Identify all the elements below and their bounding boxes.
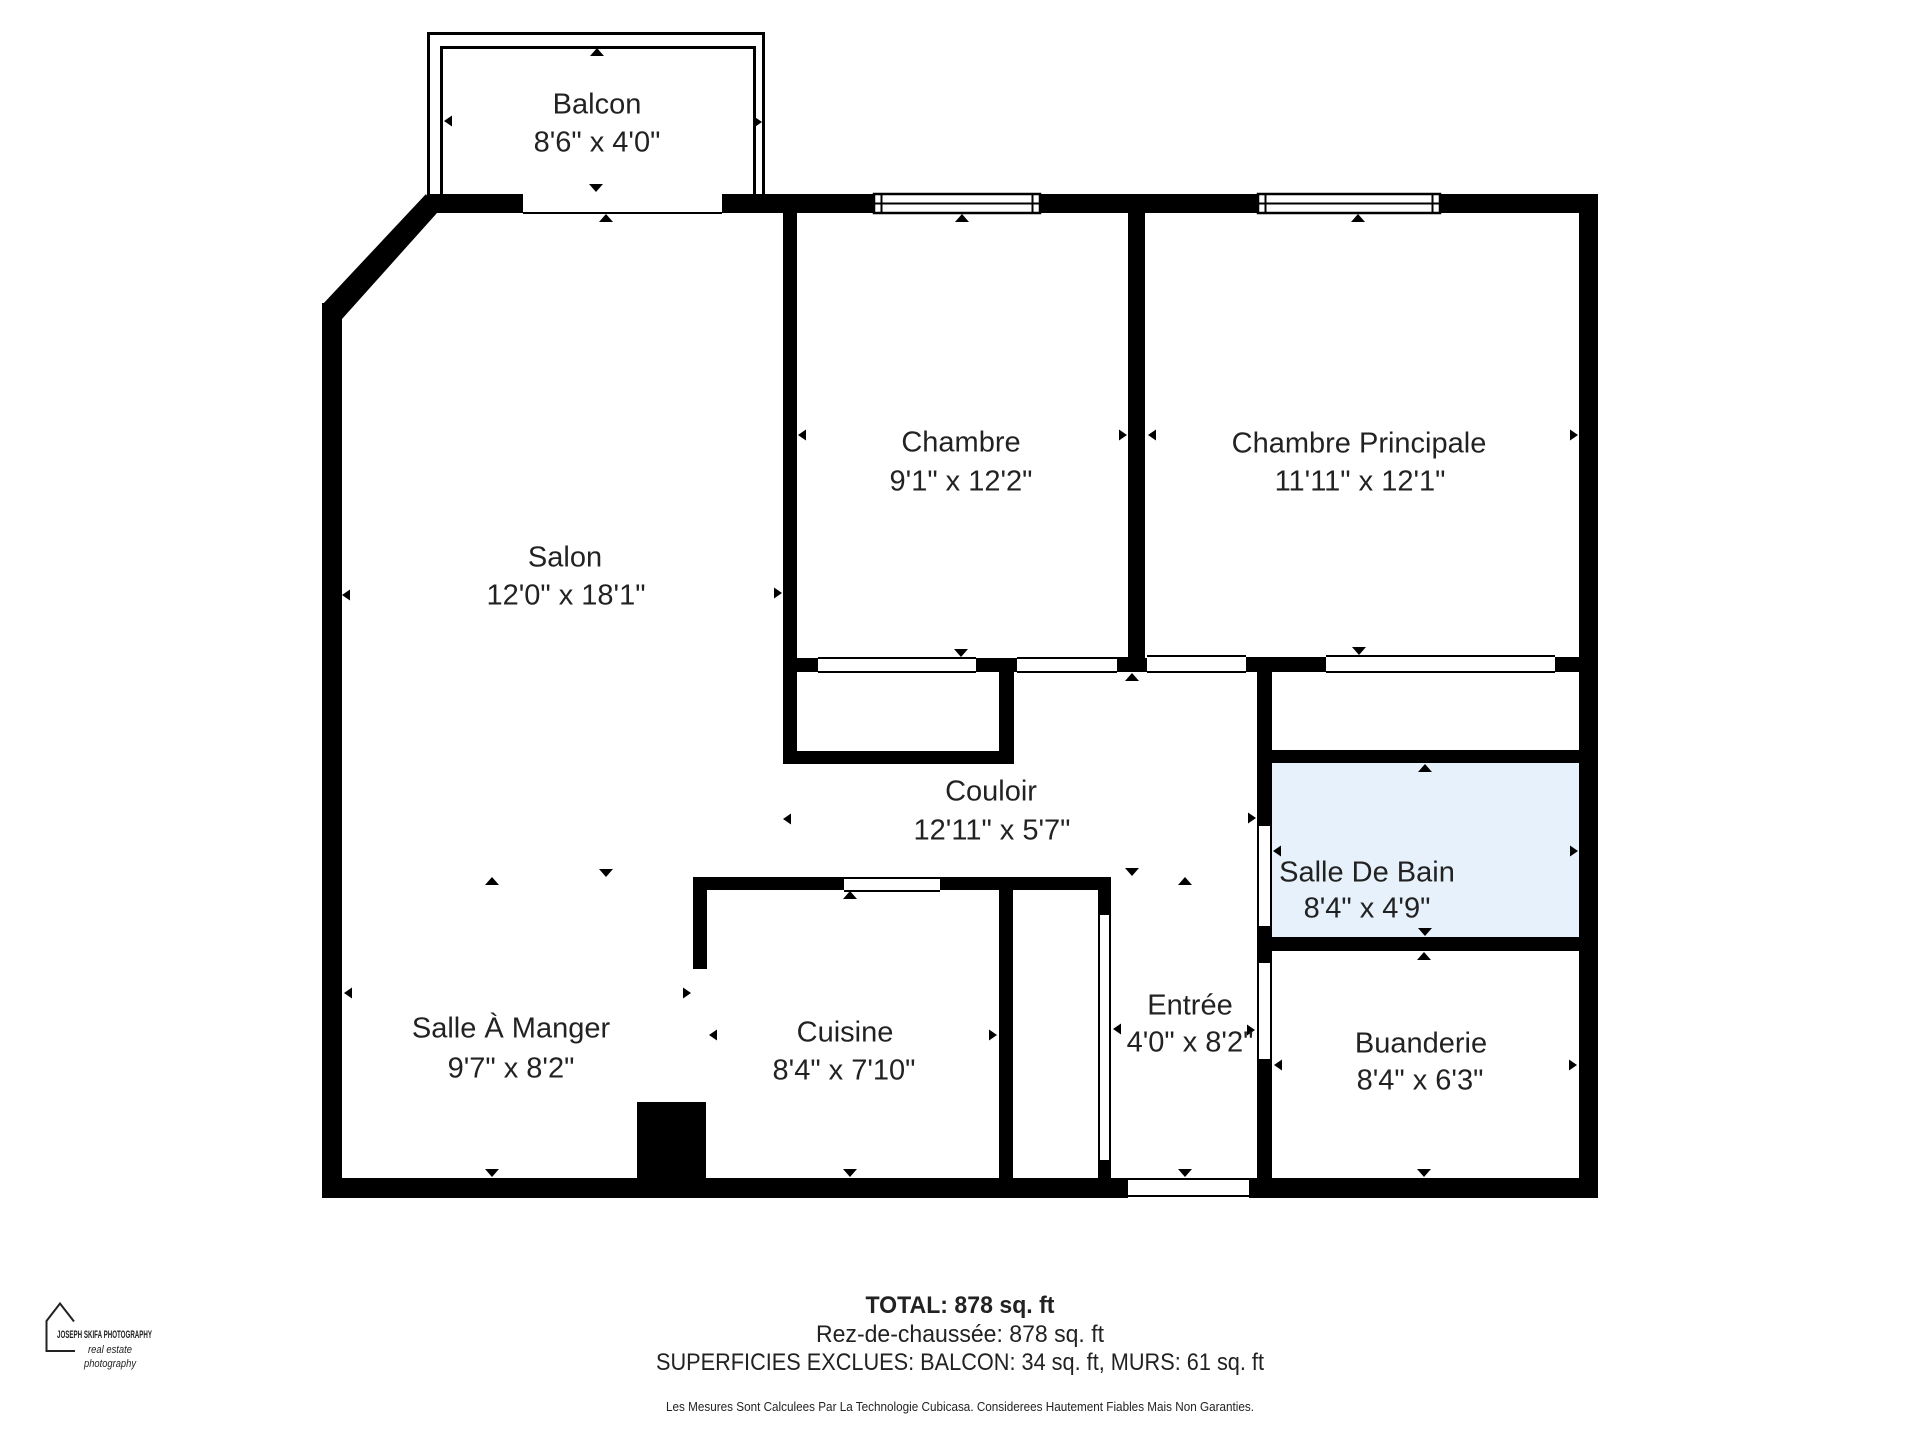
svg-text:Salon: Salon: [528, 542, 602, 574]
svg-text:Cuisine: Cuisine: [797, 1017, 894, 1049]
svg-text:8'4" x 7'10": 8'4" x 7'10": [773, 1055, 916, 1087]
svg-text:Buanderie: Buanderie: [1355, 1028, 1487, 1060]
svg-text:9'7" x 8'2": 9'7" x 8'2": [448, 1053, 575, 1085]
svg-text:SUPERFICIES EXCLUES: BALCON: 3: SUPERFICIES EXCLUES: BALCON: 34 sq. ft, …: [656, 1349, 1264, 1376]
svg-text:12'0" x 18'1": 12'0" x 18'1": [486, 580, 645, 612]
svg-text:Couloir: Couloir: [945, 776, 1037, 808]
svg-text:9'1" x 12'2": 9'1" x 12'2": [890, 466, 1033, 498]
svg-text:Salle À Manger: Salle À Manger: [412, 1012, 611, 1045]
svg-text:8'6" x 4'0": 8'6" x 4'0": [534, 127, 661, 159]
svg-text:12'11" x 5'7": 12'11" x 5'7": [914, 815, 1071, 847]
svg-text:Les Mesures Sont Calculees Par: Les Mesures Sont Calculees Par La Techno…: [666, 1399, 1254, 1414]
svg-text:Chambre: Chambre: [901, 427, 1020, 459]
svg-text:Rez-de-chaussée: 878 sq. ft: Rez-de-chaussée: 878 sq. ft: [816, 1321, 1104, 1348]
svg-text:photography: photography: [83, 1358, 137, 1370]
svg-text:real estate: real estate: [88, 1344, 132, 1356]
svg-text:Salle De Bain: Salle De Bain: [1279, 857, 1455, 889]
svg-text:Balcon: Balcon: [553, 89, 642, 121]
svg-text:8'4" x 6'3": 8'4" x 6'3": [1357, 1065, 1484, 1097]
svg-text:Entrée: Entrée: [1147, 990, 1232, 1022]
svg-text:TOTAL: 878 sq. ft: TOTAL: 878 sq. ft: [866, 1292, 1055, 1319]
svg-text:8'4" x 4'9": 8'4" x 4'9": [1304, 893, 1431, 925]
svg-text:Chambre Principale: Chambre Principale: [1232, 428, 1487, 460]
svg-text:JOSEPH SKIFA PHOTOGRAPHY: JOSEPH SKIFA PHOTOGRAPHY: [57, 1329, 152, 1341]
svg-text:11'11" x 12'1": 11'11" x 12'1": [1275, 466, 1446, 498]
svg-text:4'0" x 8'2": 4'0" x 8'2": [1127, 1027, 1254, 1059]
